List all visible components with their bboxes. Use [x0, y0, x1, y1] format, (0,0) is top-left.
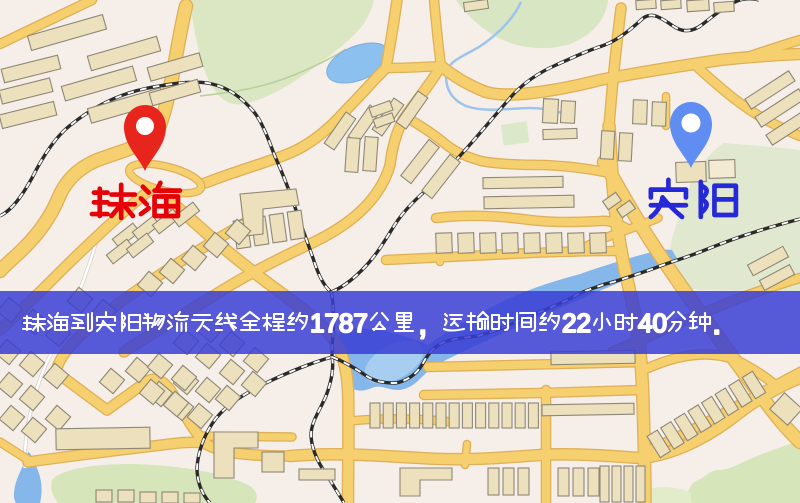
- svg-text:22: 22: [562, 308, 591, 338]
- svg-text:,: ,: [418, 304, 427, 342]
- svg-text:1787: 1787: [310, 308, 368, 338]
- svg-text:.: .: [712, 304, 721, 342]
- svg-text:40: 40: [638, 308, 667, 338]
